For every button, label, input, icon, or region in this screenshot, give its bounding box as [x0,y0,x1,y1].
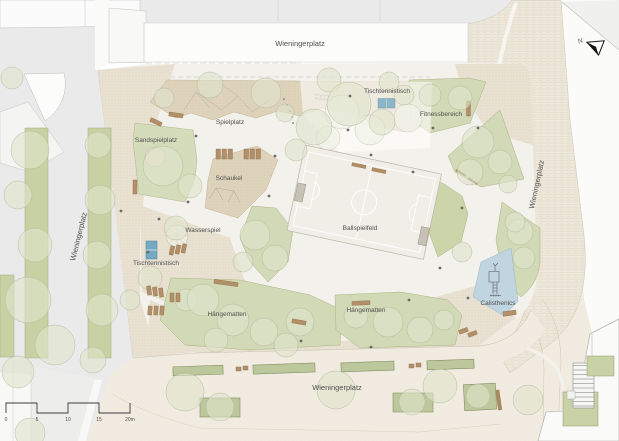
svg-text:Schaukel: Schaukel [216,175,243,182]
svg-text:Hängematten: Hängematten [346,307,385,314]
svg-text:Tischtennistisch: Tischtennistisch [133,260,179,267]
svg-text:0: 0 [5,417,8,423]
svg-text:15: 15 [96,417,102,423]
svg-text:Hängematten: Hängematten [207,311,246,318]
svg-text:Sandspielplatz: Sandspielplatz [135,137,177,144]
svg-text:Calisthenics: Calisthenics [480,300,516,307]
svg-text:Wieningerplatz: Wieningerplatz [275,39,325,48]
svg-text:Spielplatz: Spielplatz [216,119,244,126]
svg-text:20m: 20m [125,417,135,423]
svg-text:Wieningerplatz: Wieningerplatz [312,383,362,392]
svg-text:5: 5 [36,417,39,423]
svg-text:Ballspielfeld: Ballspielfeld [343,225,378,232]
svg-text:Fitnessbereich: Fitnessbereich [420,111,463,118]
svg-text:Tischtennistisch: Tischtennistisch [364,88,410,95]
svg-text:Wasserspiel: Wasserspiel [185,227,221,234]
svg-text:10: 10 [65,417,71,423]
